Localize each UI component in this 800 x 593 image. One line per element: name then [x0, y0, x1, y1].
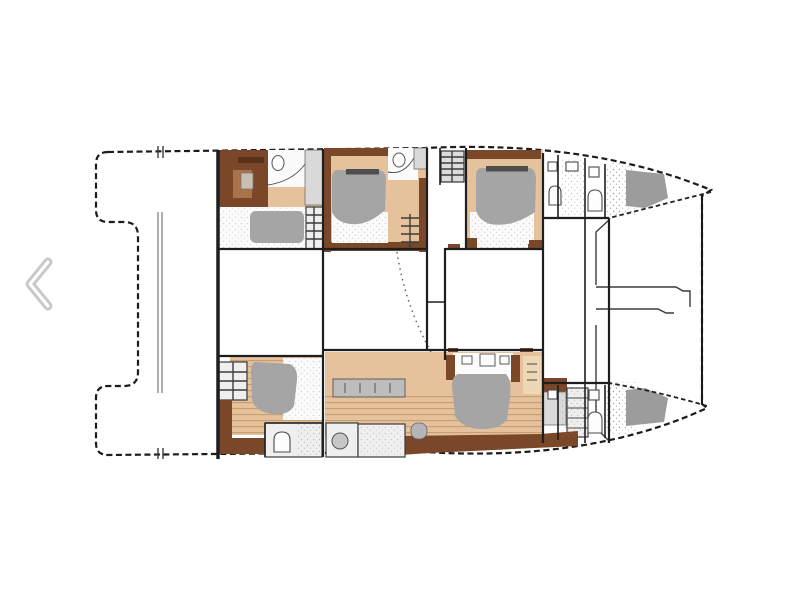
bed-duvet [476, 168, 536, 225]
bed-duvet [251, 362, 297, 414]
desk [238, 157, 264, 163]
sink [589, 167, 599, 177]
bow-shade [626, 170, 668, 208]
starboard-aft-cabin [219, 357, 323, 457]
wardrobe [305, 150, 323, 205]
toilet [588, 190, 602, 211]
galley-counter [333, 379, 405, 397]
anchor-locker-edge [596, 309, 674, 313]
toilet [274, 432, 290, 452]
sink [411, 423, 427, 439]
owner-bed-duvet [452, 374, 511, 429]
port-bow [609, 162, 711, 218]
saloon [327, 244, 541, 354]
toilet [588, 412, 602, 433]
catamaran-floorplan [0, 0, 800, 593]
side-cabinet [419, 178, 427, 252]
shower [332, 433, 348, 449]
shower-texture [560, 386, 584, 438]
image-viewer [0, 0, 800, 593]
sink [589, 390, 599, 400]
sink [566, 162, 578, 171]
toilet [393, 153, 405, 167]
locker [414, 148, 427, 169]
bed-headboard [486, 166, 528, 172]
shower-texture [296, 424, 321, 456]
aft-cockpit [158, 146, 163, 459]
starboard-owner-cabin [325, 352, 588, 457]
toilet [549, 186, 561, 205]
head-cabinet [467, 150, 541, 159]
sink [548, 390, 557, 399]
toilet [272, 156, 284, 171]
floorplan-image [0, 0, 800, 593]
port-forward-cabin [467, 150, 543, 250]
port-mid-cabin [324, 148, 427, 252]
sink [548, 162, 557, 171]
nightstand [511, 355, 520, 382]
deck-step [596, 220, 609, 285]
port-aft-cabin [219, 150, 323, 249]
companionway-stairs [441, 151, 464, 182]
desk-chair [241, 173, 253, 189]
foot-cabinet [219, 438, 269, 454]
nightstand [446, 355, 455, 380]
bathroom-texture [360, 426, 403, 455]
cabin-door [523, 356, 541, 394]
side-cabinet [324, 148, 331, 252]
bed-headboard [346, 169, 379, 175]
bed-duvet [250, 211, 304, 243]
